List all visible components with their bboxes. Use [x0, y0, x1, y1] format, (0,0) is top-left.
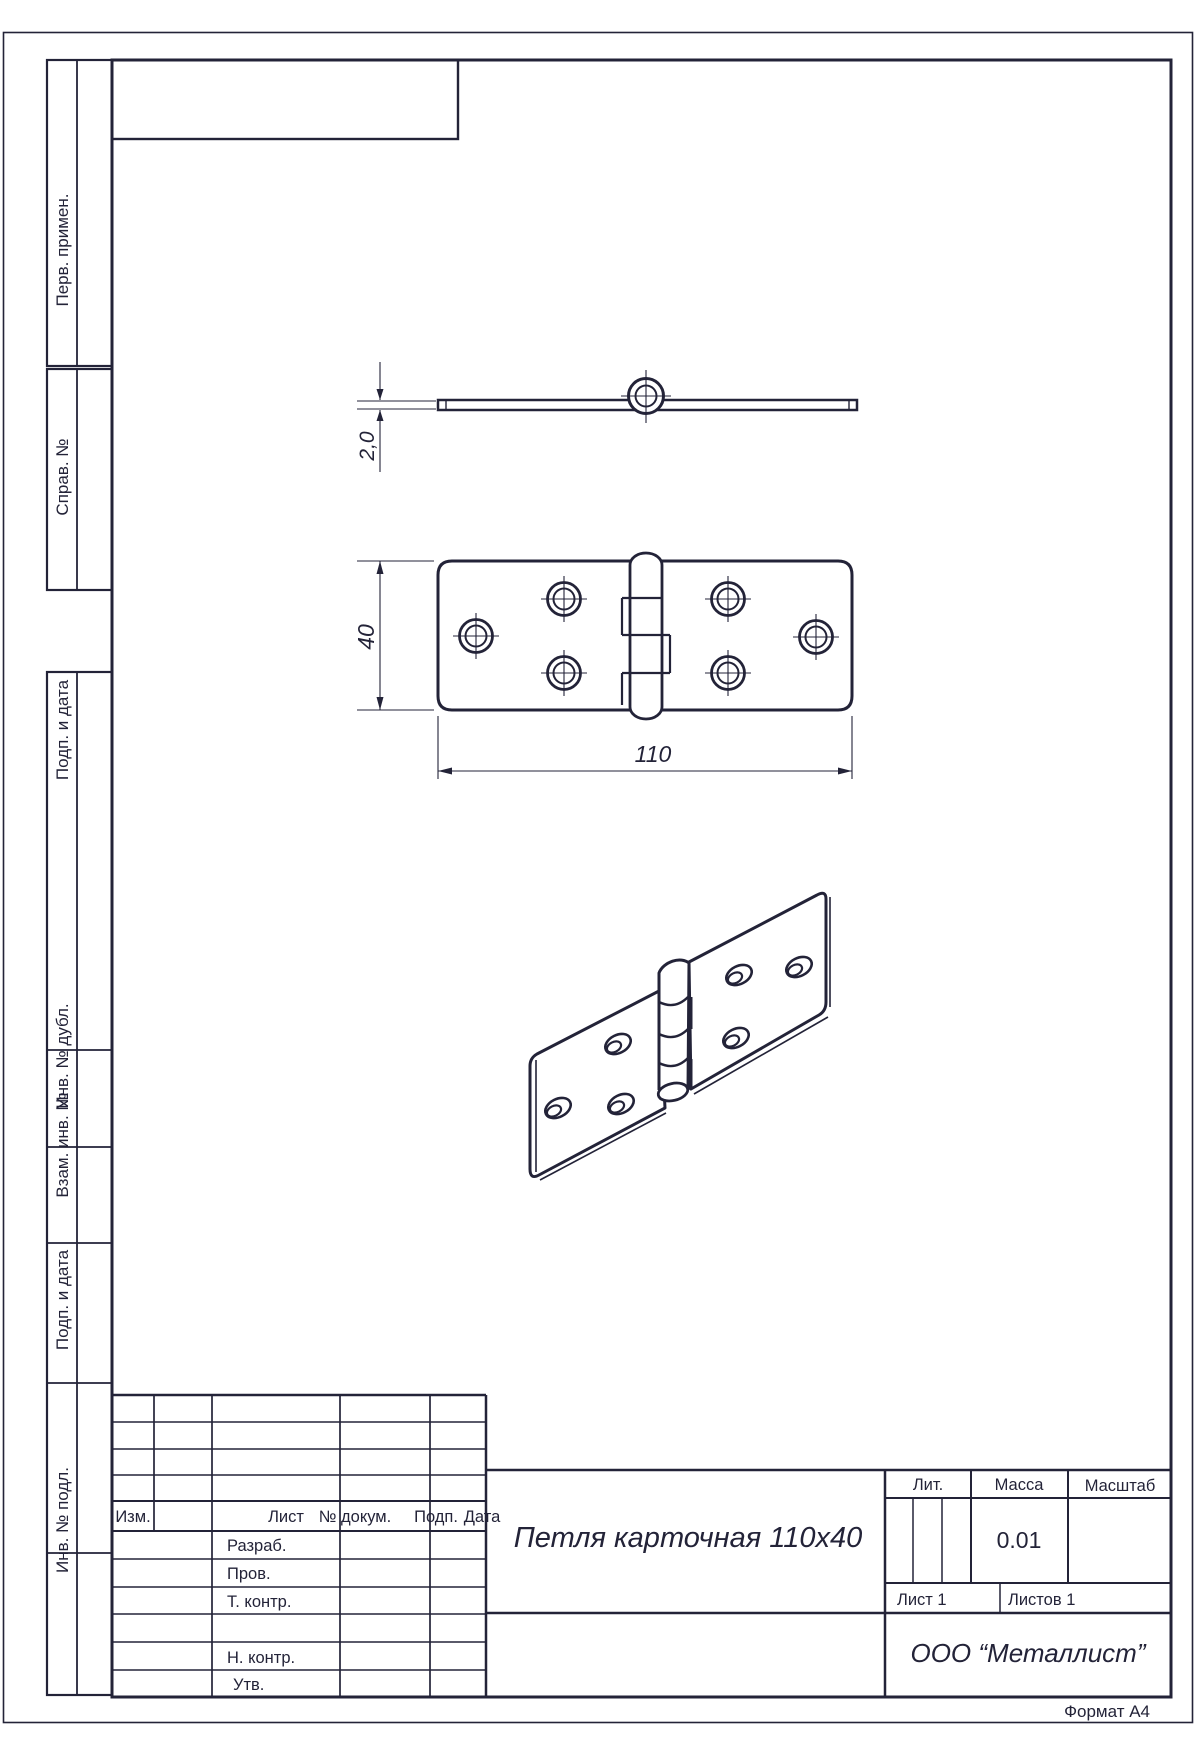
- margin-label-sprav-no: Справ. №: [53, 438, 72, 515]
- dim-height-label: 40: [353, 624, 379, 650]
- sheet-number: Лист 1: [897, 1591, 947, 1609]
- plan-view: 40 110: [353, 553, 852, 779]
- arrowhead: [438, 768, 452, 775]
- arrowhead: [838, 768, 852, 775]
- header-izm: Изм.: [115, 1508, 150, 1526]
- margin-label-perv-primen: Перв. примен.: [53, 193, 72, 306]
- scale-label: Масштаб: [1085, 1477, 1156, 1495]
- header-doc: № докум.: [319, 1508, 392, 1526]
- sheets-total: Листов 1: [1008, 1591, 1075, 1609]
- margin-label-inv-no-podl: Инв. № подл.: [53, 1467, 72, 1573]
- side-view: 2,0: [356, 362, 857, 472]
- row-tkontr: Т. контр.: [227, 1593, 291, 1611]
- mass-value: 0.01: [997, 1527, 1042, 1553]
- row-utv: Утв.: [233, 1676, 264, 1694]
- arrowhead: [377, 389, 384, 400]
- format-label: Формат А4: [1064, 1702, 1150, 1721]
- margin-label-vzam-inv-no: Взам. инв. №: [53, 1092, 72, 1197]
- arrowhead: [377, 561, 384, 574]
- row-nkontr: Н. контр.: [227, 1649, 295, 1667]
- row-razrab: Разраб.: [227, 1537, 286, 1555]
- header-podp: Подп.: [414, 1508, 458, 1526]
- frame-border: [112, 60, 1171, 1697]
- dim-length-label: 110: [635, 741, 672, 767]
- header-list: Лист: [268, 1508, 304, 1526]
- row-prov: Пров.: [227, 1565, 271, 1583]
- company-name: ООО “Металлист”: [910, 1638, 1146, 1668]
- arrowhead: [377, 697, 384, 710]
- dim-thickness-label: 2,0: [356, 431, 379, 462]
- drawing-title: Петля карточная 110x40: [514, 1522, 862, 1554]
- arrowhead: [377, 410, 384, 421]
- isometric-view: [530, 893, 830, 1180]
- header-data: Дата: [464, 1508, 501, 1526]
- iso-right-plate: [689, 893, 826, 1089]
- margin-label-podp-i-data-1: Подп. и дата: [53, 679, 72, 780]
- engineering-drawing: Перв. примен. Справ. № Подп. и дата Инв.…: [0, 0, 1200, 1760]
- lit-label: Лит.: [913, 1476, 943, 1494]
- drawing-sheet: Перв. примен. Справ. № Подп. и дата Инв.…: [0, 0, 1200, 1760]
- left-margin-labels: Перв. примен. Справ. № Подп. и дата Инв.…: [53, 193, 72, 1572]
- top-reference-box: [112, 60, 458, 139]
- mass-label: Масса: [995, 1476, 1045, 1494]
- iso-barrel: [659, 960, 689, 1090]
- margin-label-podp-i-data-2: Подп. и дата: [53, 1249, 72, 1350]
